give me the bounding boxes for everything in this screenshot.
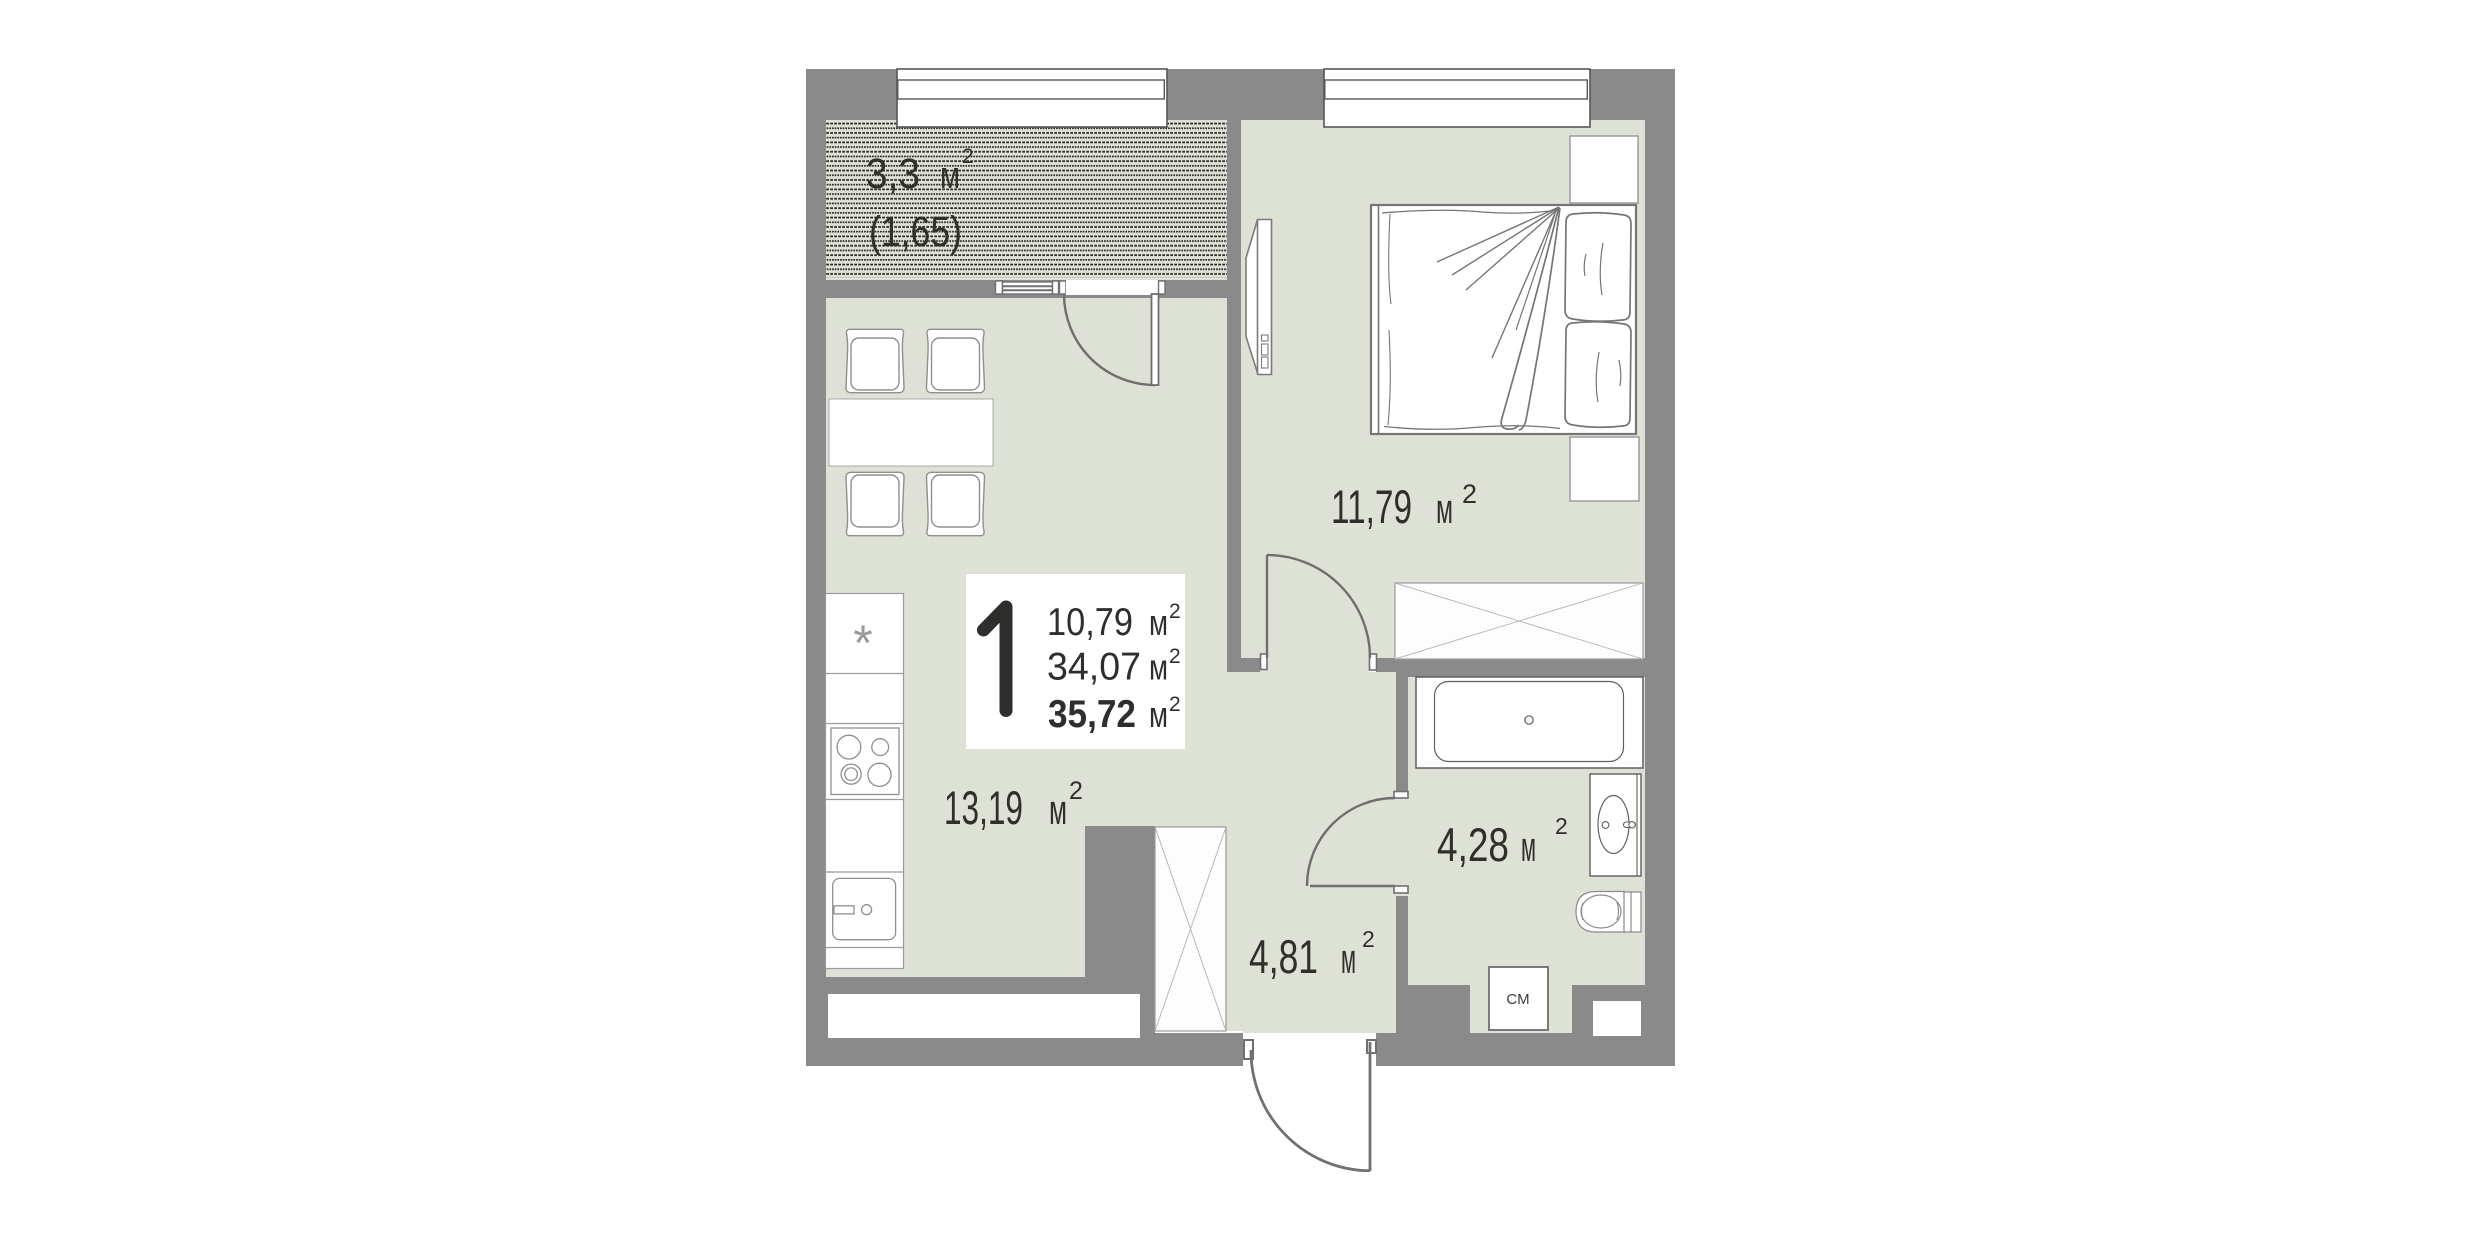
svg-text:2: 2 bbox=[1362, 926, 1375, 952]
svg-text:2: 2 bbox=[1169, 645, 1181, 668]
svg-text:м: м bbox=[1149, 647, 1168, 688]
svg-text:4,28: 4,28 bbox=[1437, 818, 1509, 871]
svg-text:м: м bbox=[1149, 694, 1168, 735]
svg-text:13,19: 13,19 bbox=[944, 781, 1023, 834]
svg-text:СМ: СМ bbox=[1506, 991, 1529, 1008]
svg-text:10,79: 10,79 bbox=[1047, 601, 1133, 644]
svg-text:м: м bbox=[940, 155, 960, 197]
svg-text:2: 2 bbox=[962, 145, 974, 168]
svg-text:3,3: 3,3 bbox=[866, 150, 920, 198]
svg-text:34,07: 34,07 bbox=[1047, 646, 1141, 689]
svg-text:4,81: 4,81 bbox=[1249, 930, 1318, 983]
svg-text:2: 2 bbox=[1169, 693, 1181, 716]
svg-text:м: м bbox=[1149, 602, 1168, 643]
svg-text:2: 2 bbox=[1462, 479, 1477, 509]
svg-text:35,72: 35,72 bbox=[1048, 693, 1136, 736]
svg-text:2: 2 bbox=[1555, 813, 1568, 839]
svg-text:*: * bbox=[853, 615, 872, 671]
svg-text:(1,65): (1,65) bbox=[869, 208, 962, 256]
svg-text:11,79: 11,79 bbox=[1331, 480, 1412, 533]
svg-text:2: 2 bbox=[1069, 777, 1083, 805]
svg-text:м: м bbox=[1521, 823, 1536, 870]
svg-text:м: м bbox=[1436, 485, 1453, 532]
svg-text:м: м bbox=[1049, 786, 1067, 833]
svg-text:м: м bbox=[1341, 935, 1356, 982]
svg-text:2: 2 bbox=[1169, 600, 1181, 623]
